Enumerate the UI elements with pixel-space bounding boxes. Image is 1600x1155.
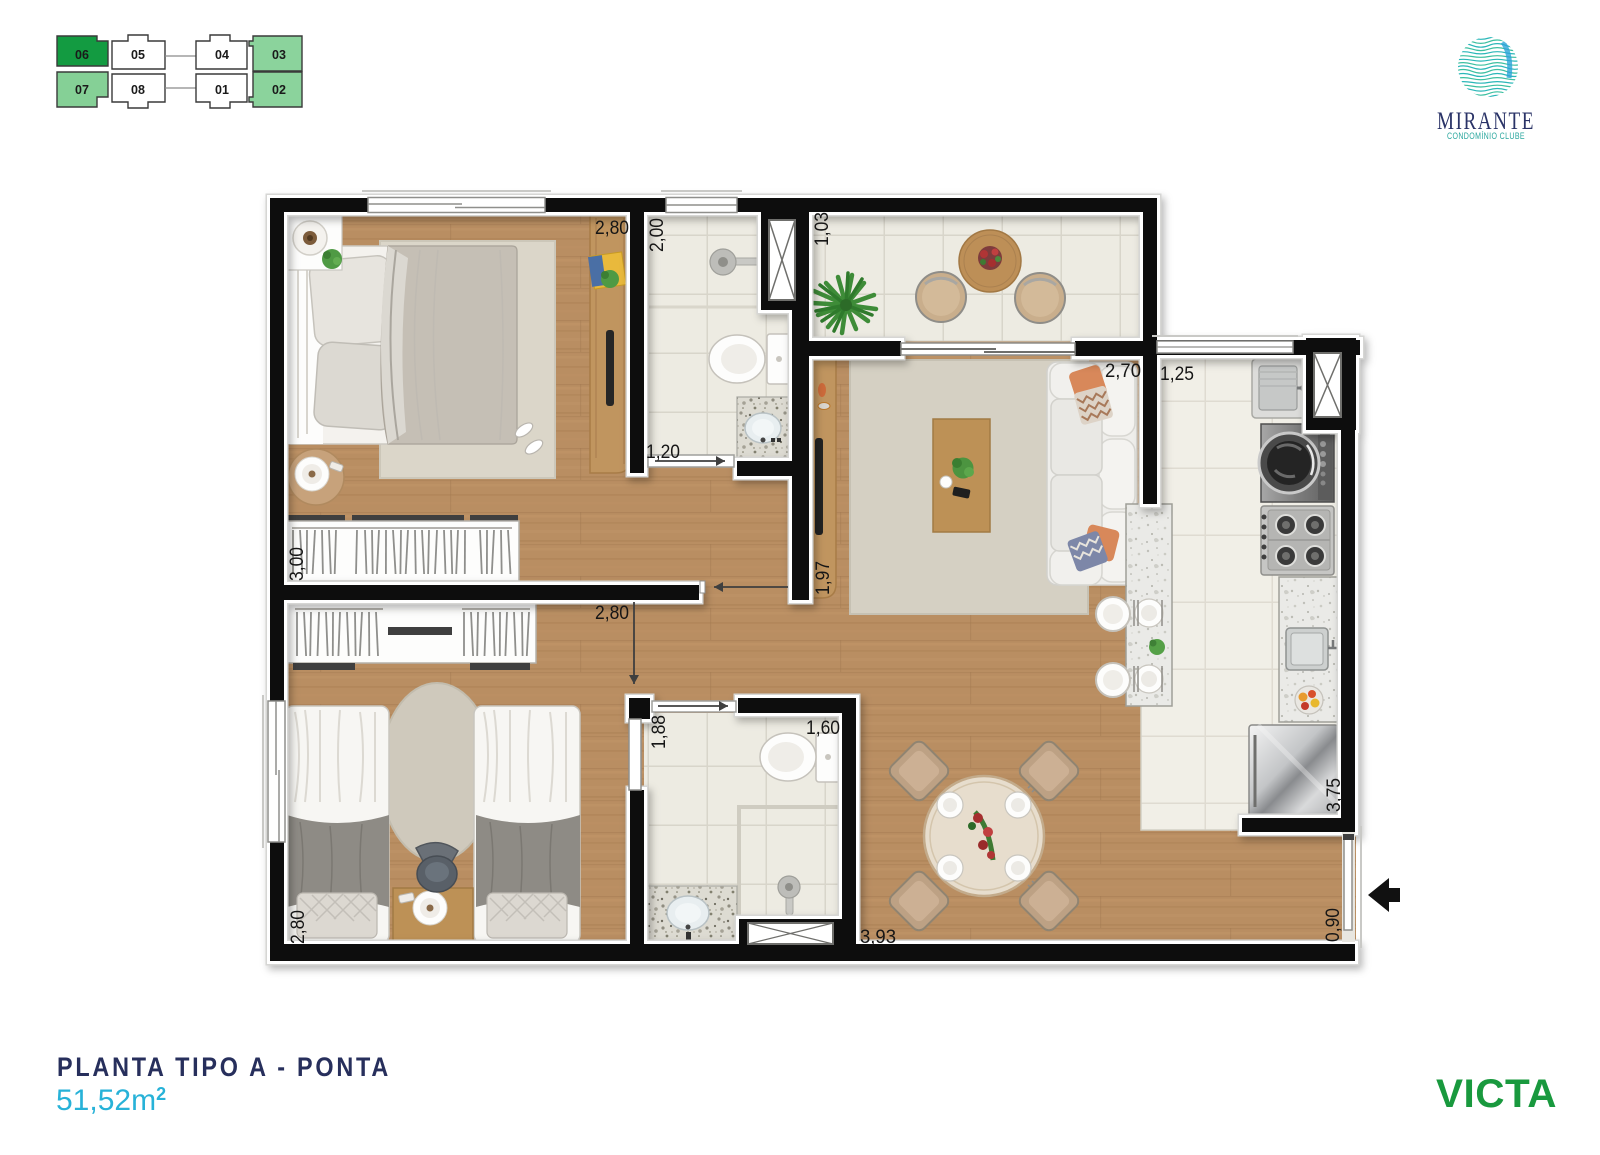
svg-text:CONDOMÍNIO CLUBE: CONDOMÍNIO CLUBE xyxy=(1447,131,1525,142)
svg-text:0,90: 0,90 xyxy=(1323,908,1344,942)
svg-text:08: 08 xyxy=(131,83,145,97)
svg-text:3,75: 3,75 xyxy=(1324,778,1345,812)
svg-text:3,00: 3,00 xyxy=(287,547,308,581)
svg-text:2,70: 2,70 xyxy=(1105,361,1141,382)
svg-text:2,80: 2,80 xyxy=(595,218,629,239)
svg-text:PLANTA TIPO A - PONTA: PLANTA TIPO A - PONTA xyxy=(57,1052,391,1082)
svg-text:2,80: 2,80 xyxy=(288,910,309,944)
svg-text:06: 06 xyxy=(75,48,89,62)
svg-text:01: 01 xyxy=(215,83,229,97)
svg-text:07: 07 xyxy=(75,83,89,97)
svg-text:04: 04 xyxy=(215,48,229,62)
svg-text:3,93: 3,93 xyxy=(860,927,896,948)
svg-text:1,88: 1,88 xyxy=(649,715,670,749)
svg-text:03: 03 xyxy=(272,48,286,62)
svg-text:1,97: 1,97 xyxy=(813,561,834,595)
svg-text:1,25: 1,25 xyxy=(1160,364,1194,385)
svg-text:1,20: 1,20 xyxy=(646,442,680,463)
svg-text:2,00: 2,00 xyxy=(647,218,668,252)
svg-text:VICTA: VICTA xyxy=(1436,1072,1557,1116)
svg-text:05: 05 xyxy=(131,48,145,62)
svg-text:02: 02 xyxy=(272,83,286,97)
svg-text:1,03: 1,03 xyxy=(812,212,833,246)
svg-text:1,60: 1,60 xyxy=(806,718,840,739)
svg-text:51,52m2: 51,52m2 xyxy=(56,1084,166,1117)
svg-text:2,80: 2,80 xyxy=(595,603,629,624)
